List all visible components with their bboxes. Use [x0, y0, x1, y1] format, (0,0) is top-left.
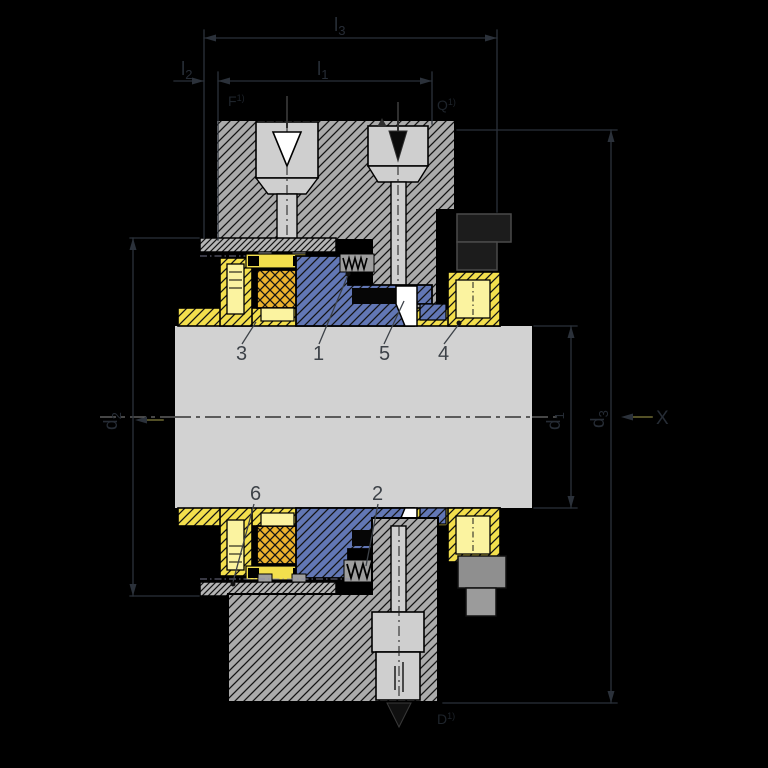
elastomer-block-top: [257, 270, 298, 308]
part-label-6: 6: [250, 483, 261, 505]
o-ring: [248, 568, 259, 578]
flange-tab: [292, 574, 306, 582]
drain-plug: [376, 652, 420, 700]
elastomer-seat-bottom: [261, 513, 294, 526]
part-label-4: 4: [438, 343, 449, 365]
leader-dot: [457, 321, 462, 326]
gland-bolt-outline: [457, 242, 497, 270]
clamp-block-bottom: [458, 556, 506, 588]
view-label-x: X: [656, 408, 669, 429]
gland-bolt-outline: [457, 214, 511, 242]
o-ring: [248, 256, 259, 266]
part-label-1: 1: [313, 343, 324, 365]
clamp-block-bottom-2: [466, 588, 496, 616]
elastomer-seat-top: [261, 308, 294, 321]
seal-cross-section-drawing: l3 l2 l1 d2 d1 d3 X F1) Q1) D1) 3 1 5 4 …: [0, 0, 768, 768]
part-label-5: 5: [379, 343, 390, 365]
seal-groove-top: [352, 288, 396, 304]
drawing-canvas: l3 l2 l1 d2 d1 d3 X F1) Q1) D1) 3 1 5 4 …: [0, 0, 768, 768]
seal-seat-top: [420, 304, 446, 320]
flange-tab: [258, 574, 272, 582]
part-label-2: 2: [372, 483, 383, 505]
elastomer-block-bottom: [257, 526, 298, 564]
flange-plate-top-strip: [200, 238, 336, 252]
part-label-3: 3: [236, 343, 247, 365]
drain-recess: [372, 612, 424, 652]
leader-dot: [231, 582, 236, 587]
leader-dot: [346, 272, 351, 277]
